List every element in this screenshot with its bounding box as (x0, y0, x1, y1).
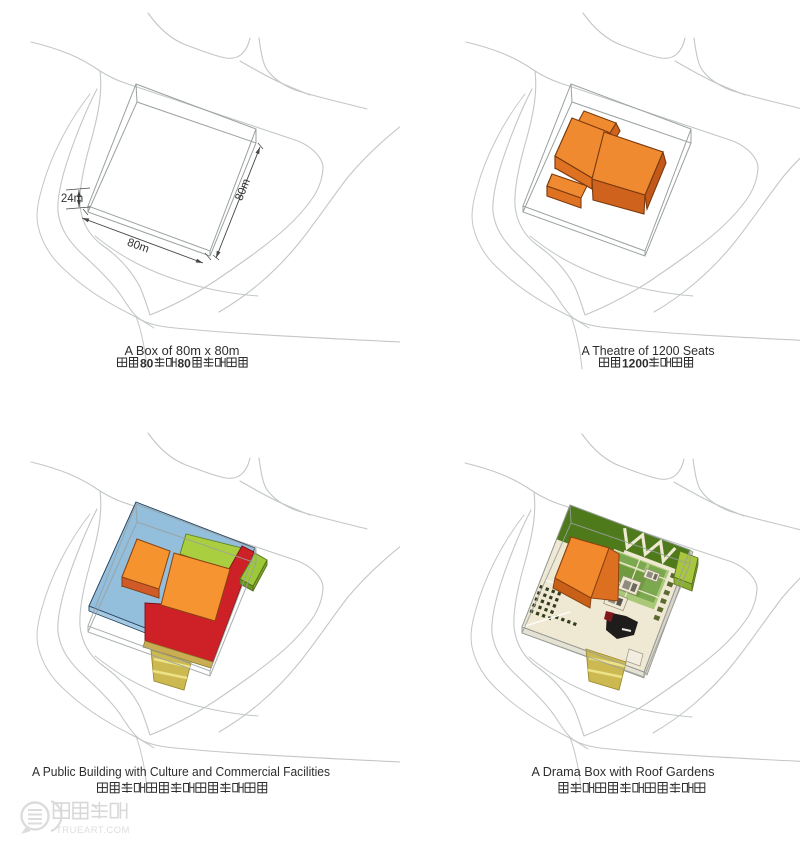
svg-text:80: 80 (178, 357, 192, 371)
svg-text:A Drama Box with Roof Gardens: A Drama Box with Roof Gardens (532, 764, 715, 779)
svg-text:A Public Building with Culture: A Public Building with Culture and Comme… (32, 764, 330, 779)
svg-text:80: 80 (140, 357, 154, 371)
svg-text:80m: 80m (125, 237, 150, 256)
svg-text:1200: 1200 (622, 357, 649, 371)
svg-text:24m: 24m (61, 193, 83, 205)
svg-text:TRUEART.COM: TRUEART.COM (56, 825, 130, 836)
